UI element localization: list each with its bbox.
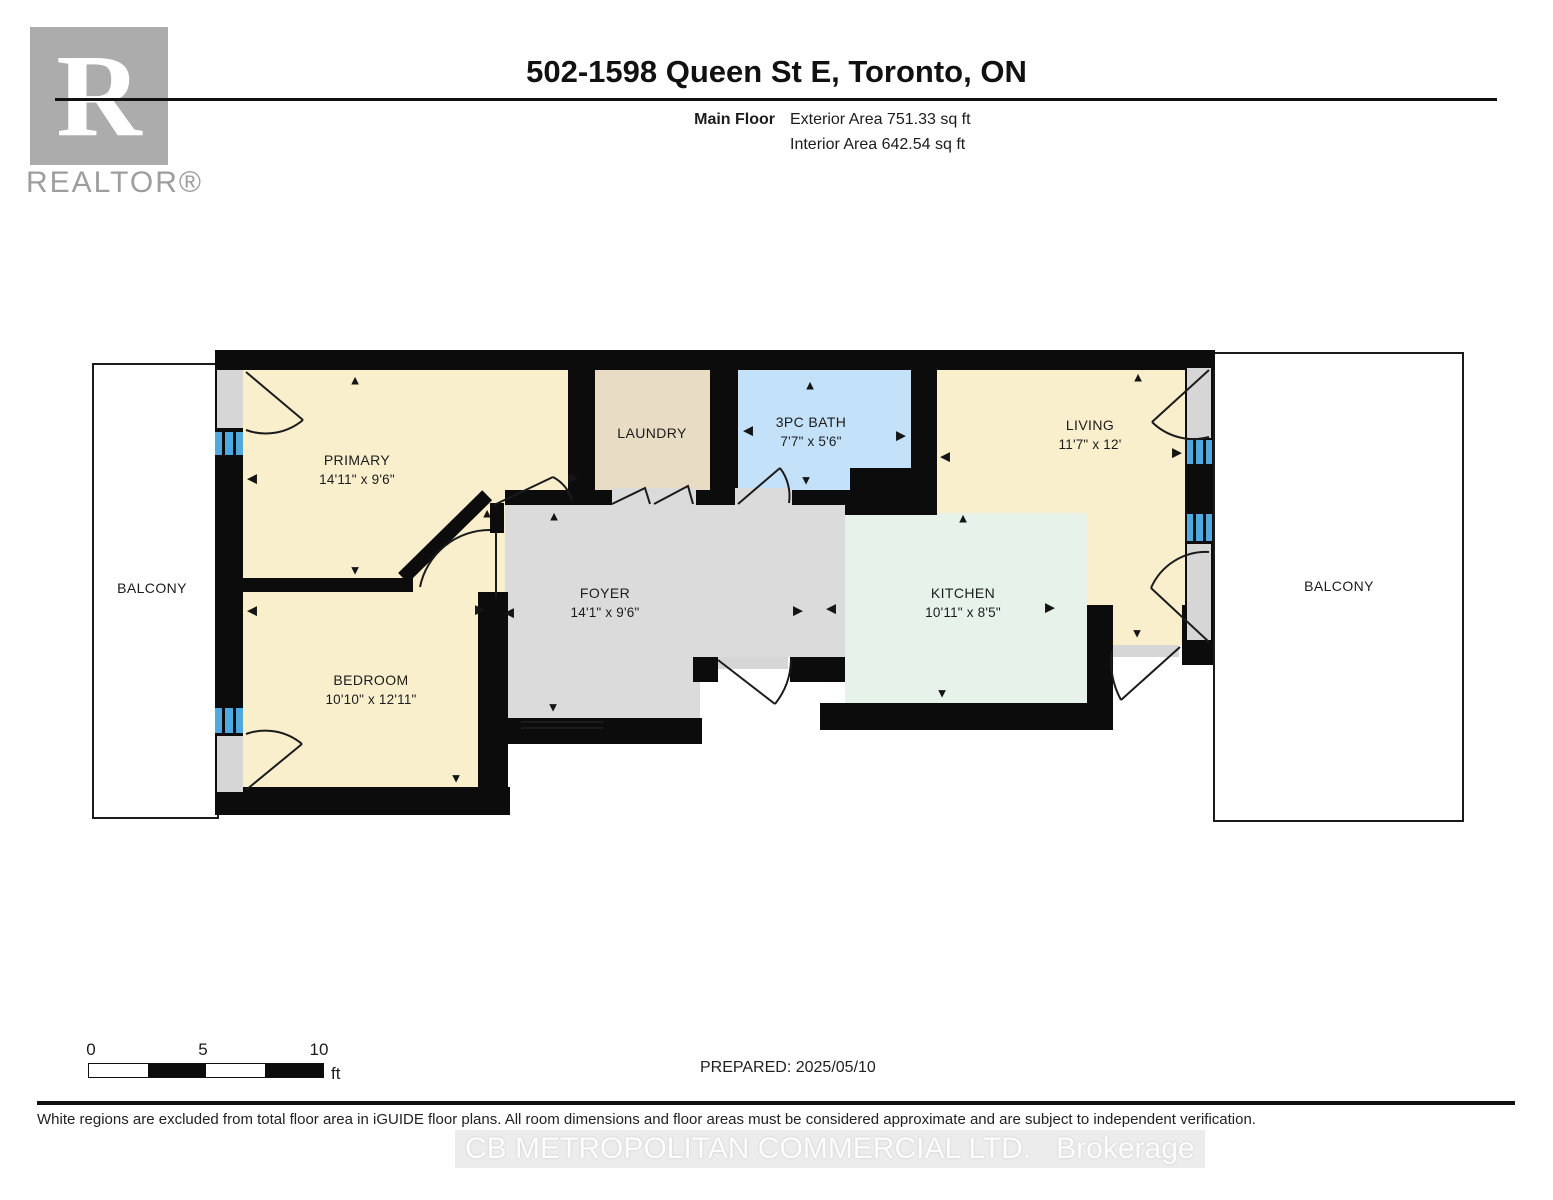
scale-tick-5: 5 — [198, 1040, 207, 1060]
room-dims: 7'7" x 5'6" — [776, 432, 847, 451]
disclaimer-text: White regions are excluded from total fl… — [37, 1111, 1517, 1128]
scale-tick-0: 0 — [86, 1040, 95, 1060]
balcony-door-bedroom — [217, 736, 243, 792]
room-name: BEDROOM — [325, 671, 416, 691]
realtor-logo-wordmark: REALTOR® — [26, 166, 203, 200]
scale-unit: ft — [331, 1064, 340, 1084]
scale-segment — [206, 1064, 265, 1077]
room-dims: 11'7" x 12' — [1059, 435, 1122, 454]
scale-segment — [148, 1064, 207, 1077]
room-name: BALCONY — [117, 579, 187, 599]
wall-primary-laundry — [568, 350, 595, 505]
wall-foyer-bottom — [505, 718, 702, 744]
scale-segment — [89, 1064, 148, 1077]
wall-kitchen-bottom — [820, 703, 1112, 730]
room-dims: 10'11" x 8'5" — [925, 603, 1001, 622]
room-dims: 10'10" x 12'11" — [325, 690, 416, 709]
label-living: LIVING11'7" x 12' — [1059, 416, 1122, 454]
page-title: 502-1598 Queen St E, Toronto, ON — [0, 54, 1553, 90]
wall-bedroom-right — [478, 592, 508, 790]
label-primary: PRIMARY14'11" x 9'6" — [319, 451, 395, 489]
scale-bar-segments — [88, 1063, 324, 1078]
label-balcony-left: BALCONY — [117, 579, 187, 599]
balcony-door-living-bottom — [1187, 544, 1211, 640]
label-bath: 3PC BATH7'7" x 5'6" — [776, 413, 847, 451]
wall-laundry-bath — [710, 350, 738, 505]
prepared-date: PREPARED: 2025/05/10 — [700, 1059, 876, 1077]
window-bedroom — [215, 708, 243, 733]
window-primary — [215, 432, 243, 455]
room-name: LAUNDRY — [617, 424, 686, 444]
wall-kitchen-top — [845, 503, 937, 515]
floor-plan-page: { "header": { "logo_letter": "R", "logo_… — [0, 0, 1553, 1200]
label-balcony-right: BALCONY — [1304, 577, 1374, 597]
room-name: LIVING — [1059, 416, 1122, 436]
wall-bath-living — [911, 350, 937, 513]
scale-segment — [265, 1064, 324, 1077]
room-dims: 14'11" x 9'6" — [319, 470, 395, 489]
scale-bar: 0 5 10 ft — [88, 1040, 368, 1082]
wall-kitchen-right — [1087, 605, 1113, 730]
room-dims: 14'1" x 9'6" — [571, 603, 640, 622]
scale-tick-10: 10 — [310, 1040, 329, 1060]
wall-bottom-left — [215, 787, 510, 815]
wall-entry-left — [693, 657, 718, 682]
interior-area-text: Interior Area 642.54 sq ft — [790, 136, 965, 154]
room-name: BALCONY — [1304, 577, 1374, 597]
room-foyer — [505, 503, 845, 657]
realtor-logo: R — [30, 27, 168, 165]
floor-label: Main Floor — [560, 111, 775, 129]
room-name: KITCHEN — [925, 584, 1001, 604]
footer-divider — [37, 1101, 1515, 1105]
brokerage-watermark: CB METROPOLITAN COMMERCIAL LTD. Brokerag… — [455, 1130, 1205, 1168]
title-divider — [55, 98, 1497, 101]
balcony-door-primary — [217, 370, 243, 428]
label-laundry: LAUNDRY — [617, 424, 686, 444]
laundry-door-opening — [612, 488, 696, 507]
window-living-top — [1187, 440, 1212, 464]
entry-door-threshold — [718, 657, 788, 669]
balcony-door-living-top — [1187, 368, 1211, 438]
room-foyer-nook — [505, 657, 700, 718]
label-foyer: FOYER14'1" x 9'6" — [571, 584, 640, 622]
label-kitchen: KITCHEN10'11" x 8'5" — [925, 584, 1001, 622]
label-bedroom: BEDROOM10'10" x 12'11" — [325, 671, 416, 709]
room-name: PRIMARY — [319, 451, 395, 471]
wall-primary-bedroom — [243, 578, 413, 592]
bath-door-opening — [735, 488, 792, 507]
room-name: FOYER — [571, 584, 640, 604]
exterior-area-text: Exterior Area 751.33 sq ft — [790, 111, 971, 129]
window-living-bottom — [1187, 514, 1212, 541]
room-name: 3PC BATH — [776, 413, 847, 433]
wall-entry-right — [790, 657, 845, 682]
living-door-threshold — [1113, 645, 1179, 657]
wall-vestibule-stub — [490, 503, 504, 533]
